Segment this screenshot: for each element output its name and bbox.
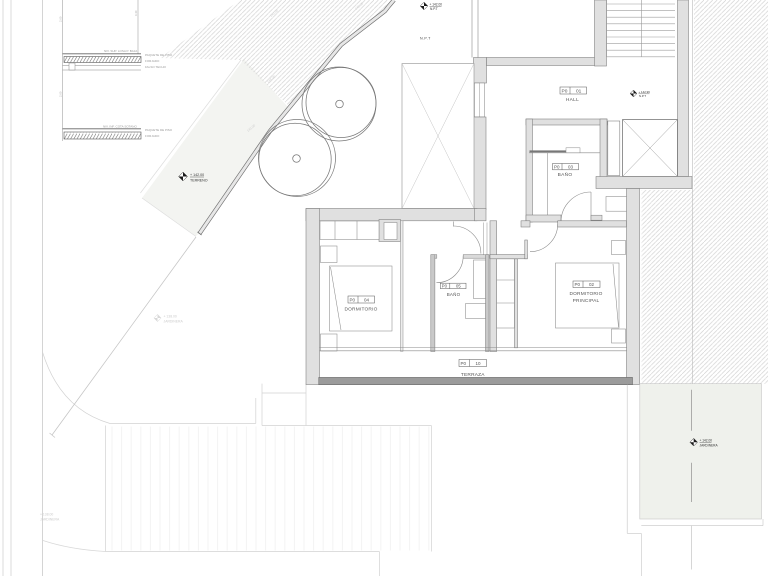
svg-text:DORMITORIO: DORMITORIO [344,307,377,313]
svg-text:10: 10 [476,361,482,366]
svg-text:N.P.T: N.P.T [420,37,431,41]
svg-text:P0: P0 [442,284,448,289]
svg-text:NIV. INF. COTA SOTANO: NIV. INF. COTA SOTANO [103,125,137,129]
svg-text:P0: P0 [554,165,560,170]
svg-text:N.P.T: N.P.T [430,7,438,11]
svg-text:DORMITORIO: DORMITORIO [569,291,602,297]
svg-text:P0: P0 [350,298,356,303]
svg-text:NIV. SUP. LOSA P. BAJA: NIV. SUP. LOSA P. BAJA [104,49,137,53]
svg-text:N.P.T: N.P.T [639,94,646,98]
svg-text:2.60: 2.60 [59,16,63,22]
svg-text:JARDINERA: JARDINERA [700,443,719,447]
svg-text:PAQUETE DE PISO: PAQUETE DE PISO [145,128,173,132]
svg-text:TERRENO: TERRENO [190,179,208,183]
svg-text:P0: P0 [575,282,581,287]
svg-text:01: 01 [576,89,582,95]
svg-text:FALSO TECHO: FALSO TECHO [145,65,167,69]
svg-text:P0: P0 [461,361,467,366]
svg-text:BAÑO: BAÑO [558,171,573,178]
svg-text:0.40: 0.40 [134,10,138,16]
svg-text:+ 138.00: + 138.00 [164,315,177,319]
svg-text:05: 05 [456,284,461,289]
svg-text:04: 04 [364,298,370,303]
svg-text:HALL: HALL [566,97,579,103]
svg-text:03: 03 [568,165,574,170]
svg-text:+ 138.00: + 138.00 [40,513,53,517]
svg-text:P0: P0 [562,89,568,95]
svg-text:02: 02 [589,282,595,287]
svg-text:JARDINERA: JARDINERA [164,320,184,324]
svg-text:+ 142.00: + 142.00 [700,439,713,443]
svg-text:FORJADO: FORJADO [145,59,160,63]
svg-text:2.60: 2.60 [59,91,63,97]
svg-text:FORJADO: FORJADO [145,134,160,138]
svg-text:PRINCIPAL: PRINCIPAL [573,298,600,304]
svg-text:BAÑO: BAÑO [447,291,461,297]
svg-text:+ 142.00: + 142.00 [190,173,204,177]
svg-text:JARDINERA: JARDINERA [40,518,60,522]
svg-text:TERRAZA: TERRAZA [461,372,485,378]
